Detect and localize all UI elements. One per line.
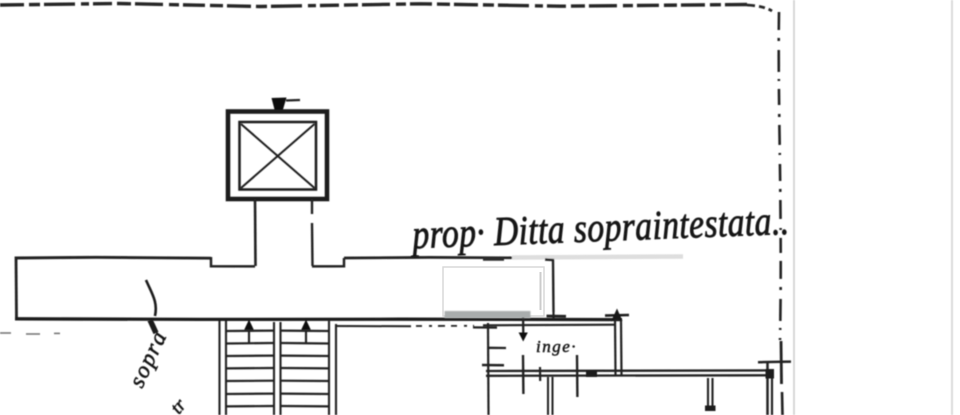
svg-text:inge·: inge· <box>536 337 577 356</box>
svg-text:tr: tr <box>166 395 191 415</box>
svg-text:prop· Ditta sopraintestata..: prop· Ditta sopraintestata.. <box>409 199 790 258</box>
svg-text:sopra: sopra <box>124 326 172 391</box>
